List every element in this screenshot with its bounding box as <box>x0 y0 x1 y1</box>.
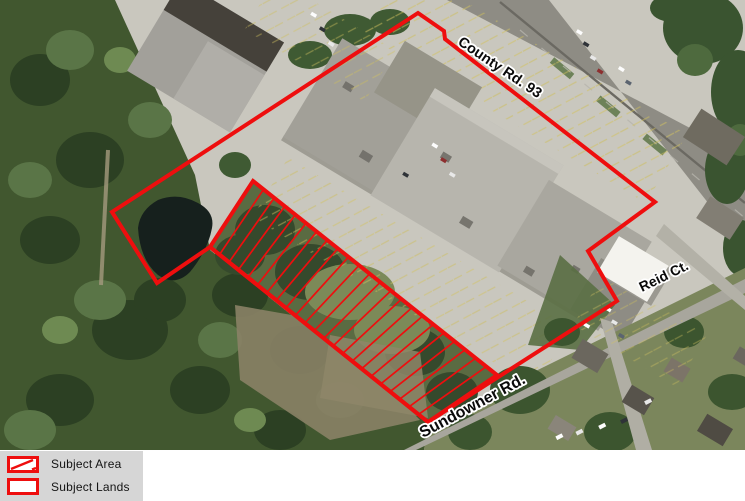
subject-area-swatch-icon <box>7 456 39 473</box>
map-figure: County Rd. 93 Reid Ct. Sundowner Rd. Sub… <box>0 0 745 501</box>
aerial-map: County Rd. 93 Reid Ct. Sundowner Rd. <box>0 0 745 450</box>
legend-item-subject-area: Subject Area <box>0 456 143 473</box>
legend-label: Subject Area <box>51 457 121 471</box>
legend: Subject Area Subject Lands <box>0 451 143 501</box>
subject-lands-swatch-icon <box>7 478 39 495</box>
legend-item-subject-lands: Subject Lands <box>0 478 143 495</box>
legend-label: Subject Lands <box>51 480 130 494</box>
